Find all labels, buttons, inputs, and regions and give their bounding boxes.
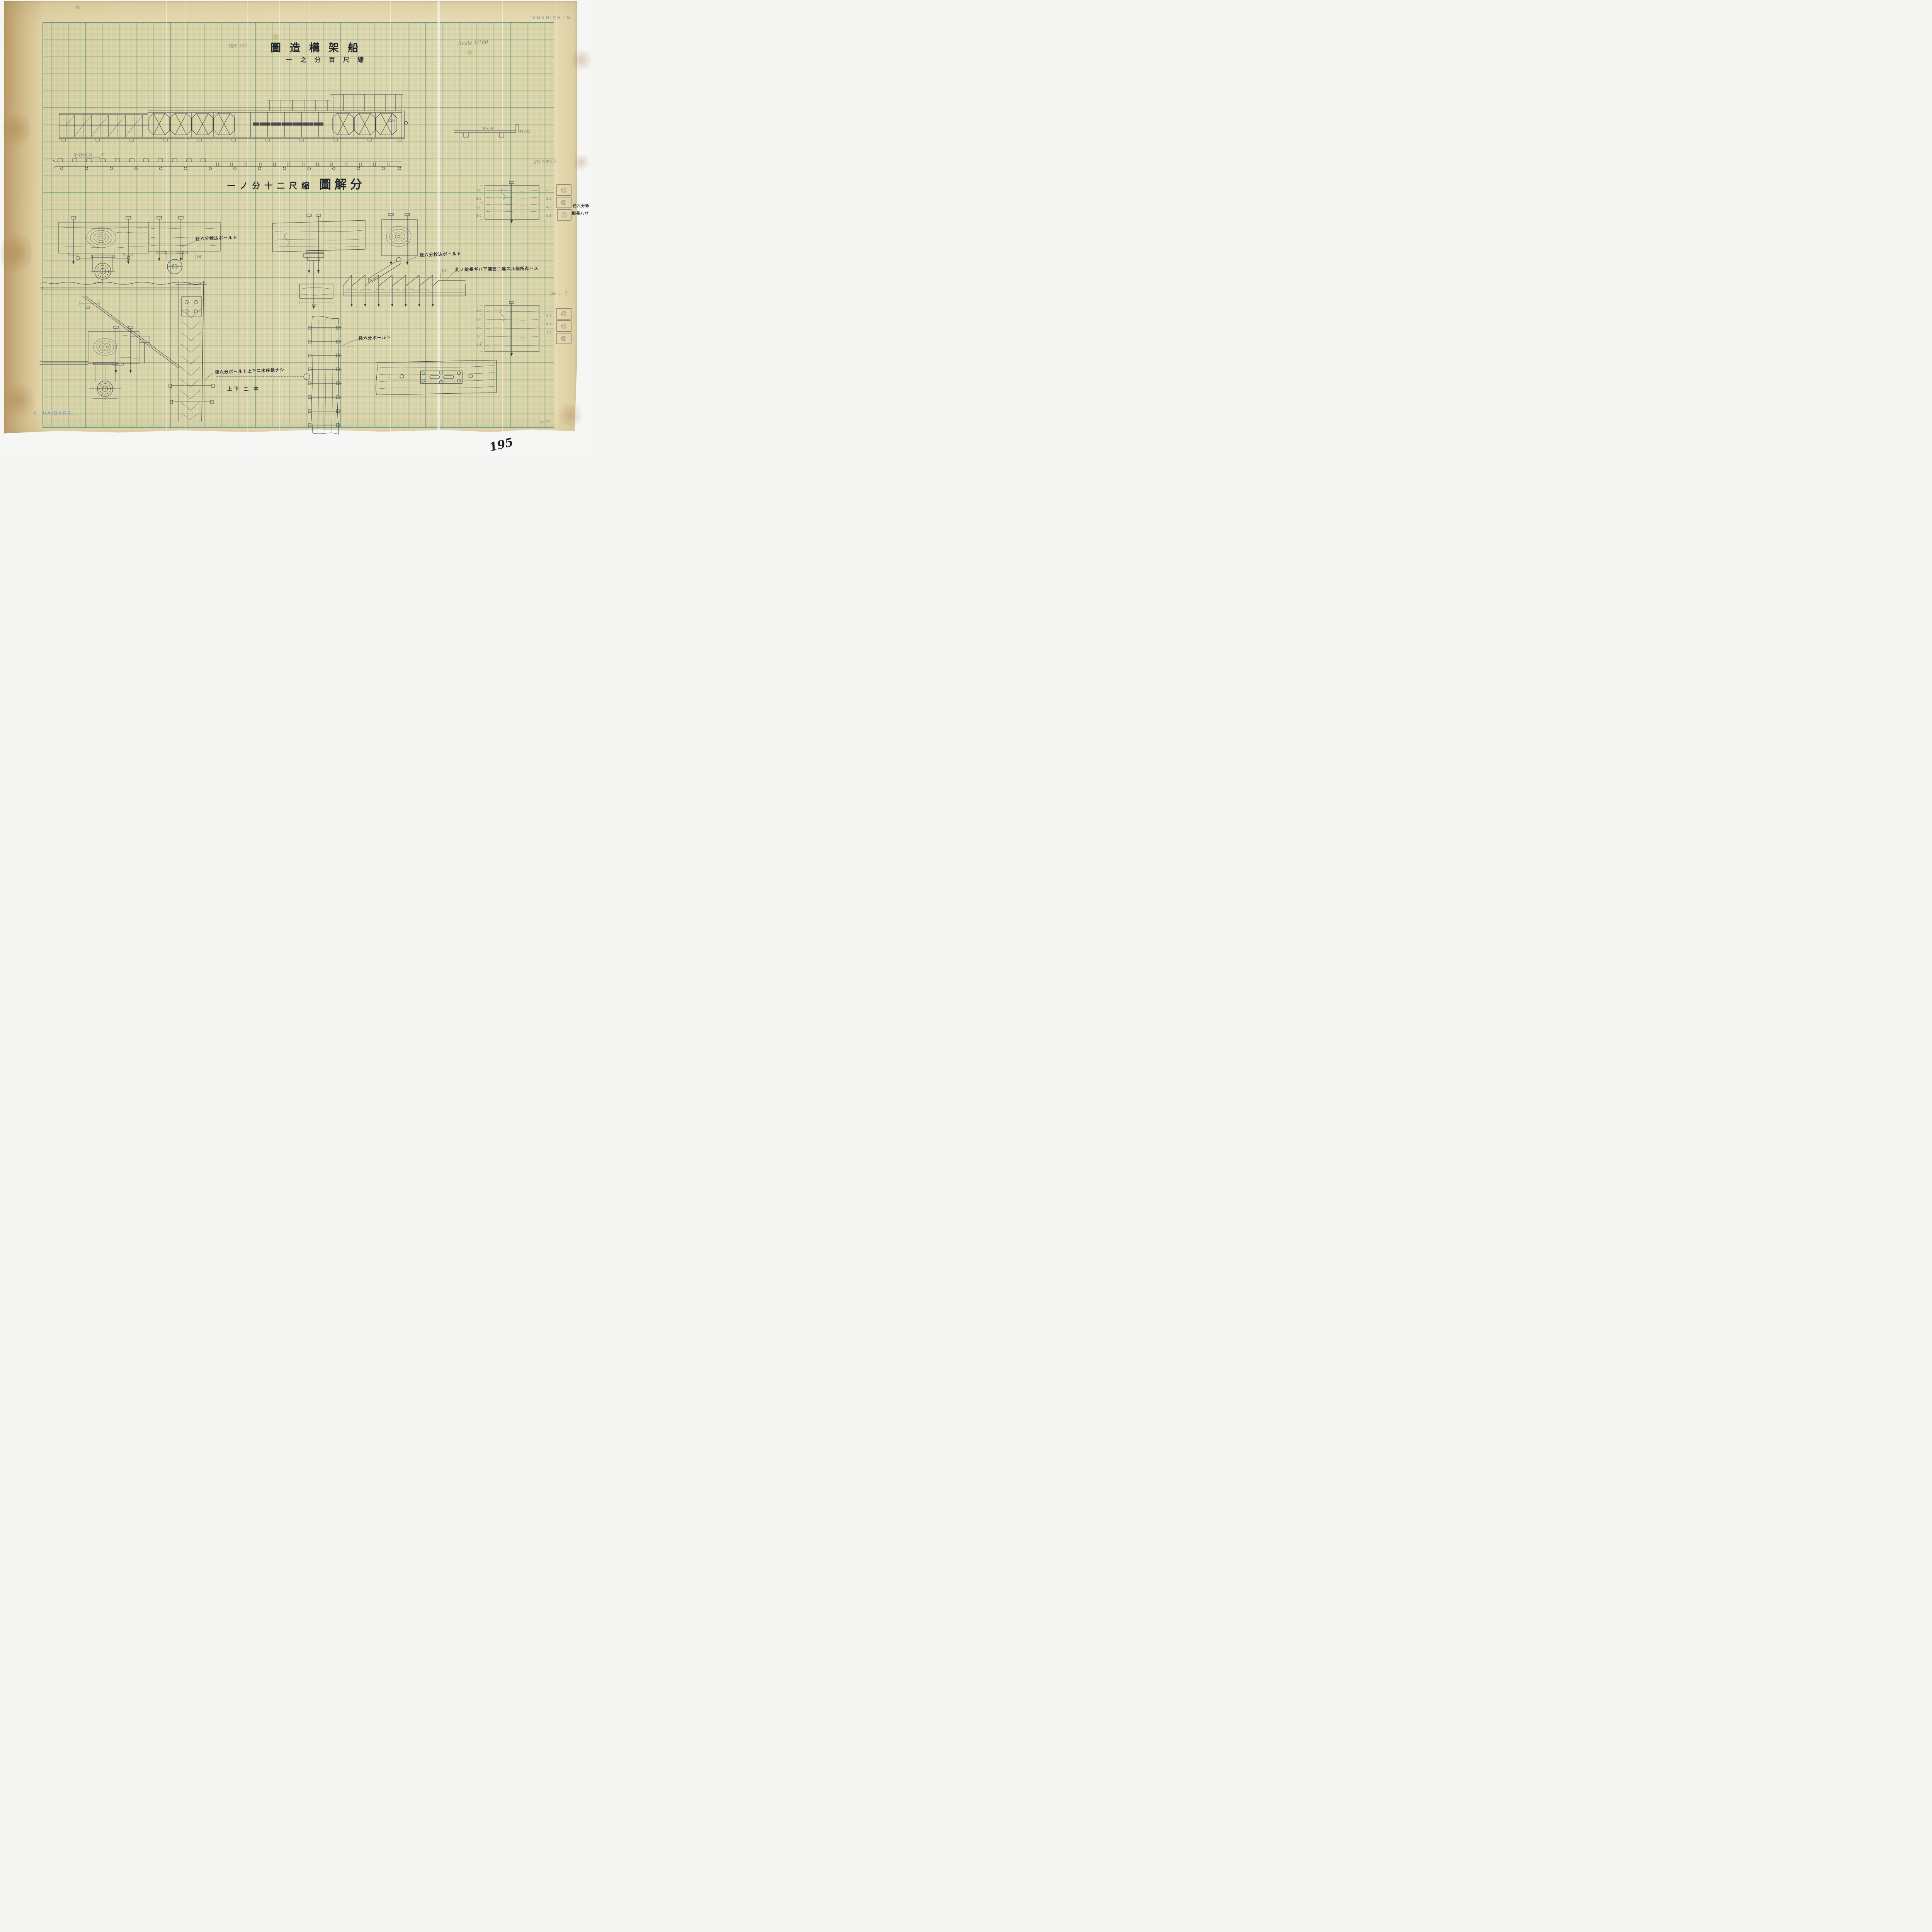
dim-value: 7,6	[474, 203, 481, 212]
dim-value: 1,0	[546, 328, 554, 337]
page-number: 195	[488, 435, 515, 454]
dim-value: 6″	[546, 186, 554, 195]
dim-value: 1,0	[474, 332, 481, 341]
section-bottom-left-dims: 1,0 3,0 1,0 1,0 1,5	[474, 307, 481, 349]
dim-brace-offset: 12′	[86, 306, 92, 310]
fold-streak	[437, 1, 440, 435]
detail-section-title: 一ノ分十二尺縮 圖解分	[227, 175, 366, 192]
dim-value: 0,5	[546, 320, 554, 328]
fold-streak	[502, 1, 503, 435]
dim-value: 1,0	[474, 324, 481, 332]
dim-value: 4,0	[546, 203, 554, 212]
fold-streak	[166, 1, 167, 435]
dim-fragment-b: 30×31	[519, 130, 530, 133]
maker-stamp-bottom: N. HAIBARA.	[33, 410, 75, 416]
annotation-rivet-line1: 径六分鋲	[573, 202, 590, 208]
annotation-bolt-plain: 径六分ボールト	[359, 334, 391, 342]
detail-title-scale: 一ノ分十二尺縮	[227, 180, 314, 191]
dim-elevation-height: 52½	[388, 119, 395, 122]
aged-left-edge	[4, 1, 44, 435]
main-subtitle: 一之分百尺縮	[286, 54, 372, 64]
scale-note-pencil: 縮尺〈5′〉	[229, 42, 250, 49]
scanned-blueprint-sheet: 圖造構架船 一之分百尺縮 一ノ分十二尺縮 圖解分 Scale 1/100 縮尺〈…	[0, 0, 591, 454]
fold-streak	[390, 1, 391, 435]
dim-block-width: 1′0″	[311, 304, 318, 307]
dim-plan-section: 5×20×0.20	[74, 153, 93, 156]
detail-title-main: 圖解分	[319, 175, 366, 192]
main-title: 圖造構架船	[270, 39, 367, 54]
section-bottom-right-dims: 0,8 0,5 1,0	[546, 311, 554, 337]
millimeter-grid	[43, 22, 554, 428]
section-top-right-dims: 6″ 1,0 4,0 0,8	[546, 186, 554, 220]
pencil-note-yamagata-right: 山形 五・五	[549, 290, 568, 296]
dim-value: 1,0	[546, 195, 554, 203]
dim-value: 0,8	[546, 212, 554, 220]
pencil-note-yamagata-top: 山形 三枚五分	[532, 158, 557, 165]
dim-value: 0,8	[546, 311, 554, 320]
dim-plan-length: 4′	[101, 153, 104, 156]
graph-paper	[4, 1, 577, 435]
dim-rack-thickness: 1½″	[441, 269, 447, 272]
dim-block-height: 1′6″	[196, 255, 202, 259]
dim-plank-width: 1′0″	[348, 345, 354, 349]
dim-fragment-a: 50×40	[482, 127, 493, 130]
maker-stamp-top: N. HAIBARA.	[529, 15, 570, 20]
dim-value: 1,5	[474, 341, 481, 349]
annotation-two-bolts: 上下 二 本	[227, 385, 260, 392]
dim-value: 7,0	[474, 186, 481, 195]
dim-value: 5,0	[474, 195, 481, 203]
dim-value: 5,0	[474, 212, 481, 220]
dim-value: 3,0	[474, 315, 481, 324]
annotation-rivet-line2: 胴長八寸	[572, 210, 589, 216]
section-top-left-dims: 7,0 5,0 7,6 5,0	[474, 186, 481, 220]
dim-value: 1,0	[474, 307, 481, 315]
